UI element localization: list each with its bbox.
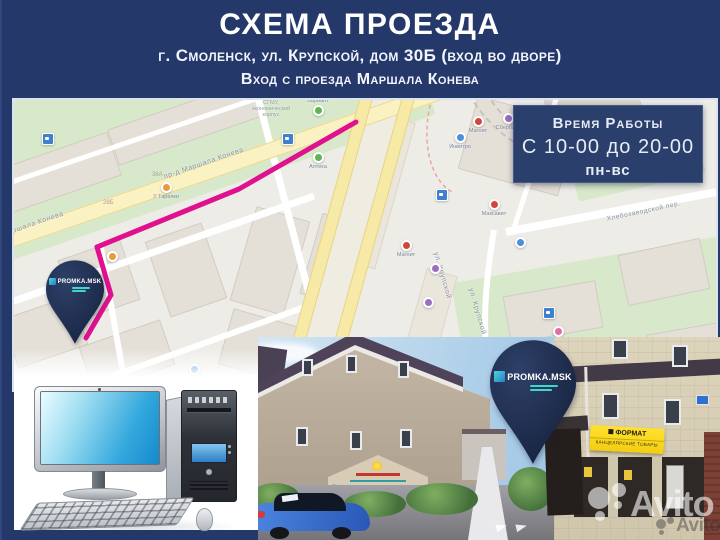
- pc-led: [228, 445, 231, 448]
- window: [346, 355, 357, 373]
- brand-tagline-bar: [72, 290, 86, 292]
- porch-teal-band: [350, 480, 406, 482]
- map-location-pin: PROMKA.MSK: [46, 260, 104, 344]
- poi-icon: [107, 251, 118, 262]
- brand-logo-icon: [494, 371, 505, 382]
- avito-watermark-text: Avito: [676, 515, 720, 537]
- poi-label: Аптека: [278, 164, 358, 170]
- hours-days: пн-вс: [514, 162, 702, 179]
- poi-icon: [313, 152, 324, 163]
- pin-logo: PROMKA.MSK: [46, 278, 104, 292]
- avito-logo-dot: [656, 519, 666, 529]
- avito-logo-dot: [612, 483, 626, 497]
- pin-shape: [46, 260, 104, 344]
- campus-line: корпус: [236, 112, 306, 118]
- store-sign-line2: КАНЦЕЛЯРСКИЕ ТОВАРЫ: [590, 437, 664, 448]
- building-photo: ФОРМАТ КАНЦЕЛЯРСКИЕ ТОВАРЫ: [258, 337, 720, 540]
- pin-logo: PROMKA.MSK: [490, 371, 576, 391]
- window: [398, 361, 409, 378]
- working-hours-box: Время Работы С 10-00 до 20-00 пн-вс: [513, 105, 703, 183]
- window: [400, 429, 412, 448]
- car-taillight: [258, 511, 265, 518]
- avito-watermark-small: Avito: [656, 515, 720, 540]
- pc-dvd-bay: [187, 408, 231, 413]
- pc-tower-vents-bottom: [190, 481, 228, 490]
- price-tag: [624, 470, 632, 480]
- poi-label: Вариант: [278, 100, 358, 104]
- poi-icon: [430, 263, 441, 274]
- address-line: г. Смоленск, ул. Крупской, дом 30Б (вход…: [0, 46, 720, 66]
- pc-led: [228, 451, 231, 454]
- bus-stop-icon: [282, 133, 294, 145]
- avito-logo-dot: [659, 530, 664, 535]
- avito-logo-dot: [667, 517, 674, 524]
- store-sign: ФОРМАТ КАНЦЕЛЯРСКИЕ ТОВАРЫ: [589, 425, 664, 454]
- pc-webcam-dot: [98, 388, 101, 391]
- bus-stop-icon: [543, 307, 555, 319]
- poi-label: Инвитро: [420, 144, 500, 150]
- car-wheel: [332, 527, 351, 539]
- price-tag: [584, 467, 592, 477]
- avito-logo-dot: [588, 487, 610, 509]
- pc-mouse: [196, 508, 213, 531]
- bus-stop-icon: [42, 133, 54, 145]
- window: [664, 399, 681, 425]
- brand-tagline-bar: [530, 389, 552, 391]
- poi-icon: [489, 199, 500, 210]
- window: [302, 359, 313, 376]
- address-plaque: [696, 395, 709, 405]
- poi-icon: [313, 105, 324, 116]
- photo-location-pin: PROMKA.MSK: [490, 339, 576, 471]
- poi-label: Максавит: [454, 211, 534, 217]
- brand-logo-icon: [49, 278, 56, 285]
- window: [602, 393, 619, 419]
- brand-tagline-bar: [530, 385, 558, 387]
- avito-logo-dot: [614, 501, 622, 509]
- pc-monitor-screen: [40, 391, 160, 465]
- entrance-line: Вход с проезда Маршала Конева: [0, 71, 720, 89]
- pin-shape: [490, 339, 576, 465]
- window: [350, 431, 362, 450]
- attic-window: [612, 339, 628, 359]
- pc-tower-vents: [188, 397, 230, 403]
- page-title: СХЕМА ПРОЕЗДА: [0, 8, 720, 42]
- poi-icon: [423, 297, 434, 308]
- house-number: 28Б: [103, 200, 114, 206]
- window: [296, 427, 308, 446]
- porch-red-lettering: [356, 473, 400, 476]
- brand-tagline-bar: [72, 287, 90, 289]
- poi-icon: [161, 182, 172, 193]
- bush: [406, 483, 478, 515]
- ad-image: СХЕМА ПРОЕЗДА г. Смоленск, ул. Крупской,…: [0, 0, 720, 540]
- store-logo-square: [608, 429, 613, 434]
- poi-icon: [401, 240, 412, 251]
- poi-icon: [553, 326, 564, 337]
- poi-icon: [515, 237, 526, 248]
- bus-stop-icon: [436, 189, 448, 201]
- hours-time: С 10-00 до 20-00: [514, 136, 702, 159]
- blue-car: [258, 493, 372, 540]
- pc-monitor-base: [63, 488, 137, 500]
- car-wheel: [270, 527, 289, 539]
- pc-power-button: [206, 469, 212, 475]
- header: СХЕМА ПРОЕЗДА г. Смоленск, ул. Крупской,…: [0, 0, 720, 100]
- avito-logo-dot: [595, 511, 605, 521]
- hours-title: Время Работы: [514, 115, 702, 132]
- brand-name: PROMKA.MSK: [507, 372, 572, 382]
- sun-sign-icon: [372, 461, 382, 471]
- pc-tower: [181, 390, 237, 502]
- brand-name: PROMKA.MSK: [58, 279, 102, 285]
- poi-icon: [455, 132, 466, 143]
- pc-tower-badge: [191, 443, 227, 463]
- house-number: 38А: [152, 172, 163, 178]
- poi-label: Магнит: [366, 252, 446, 258]
- desktop-computer-graphic: [16, 372, 258, 538]
- poi-label: У Тарелки: [126, 194, 206, 200]
- attic-window: [672, 345, 688, 367]
